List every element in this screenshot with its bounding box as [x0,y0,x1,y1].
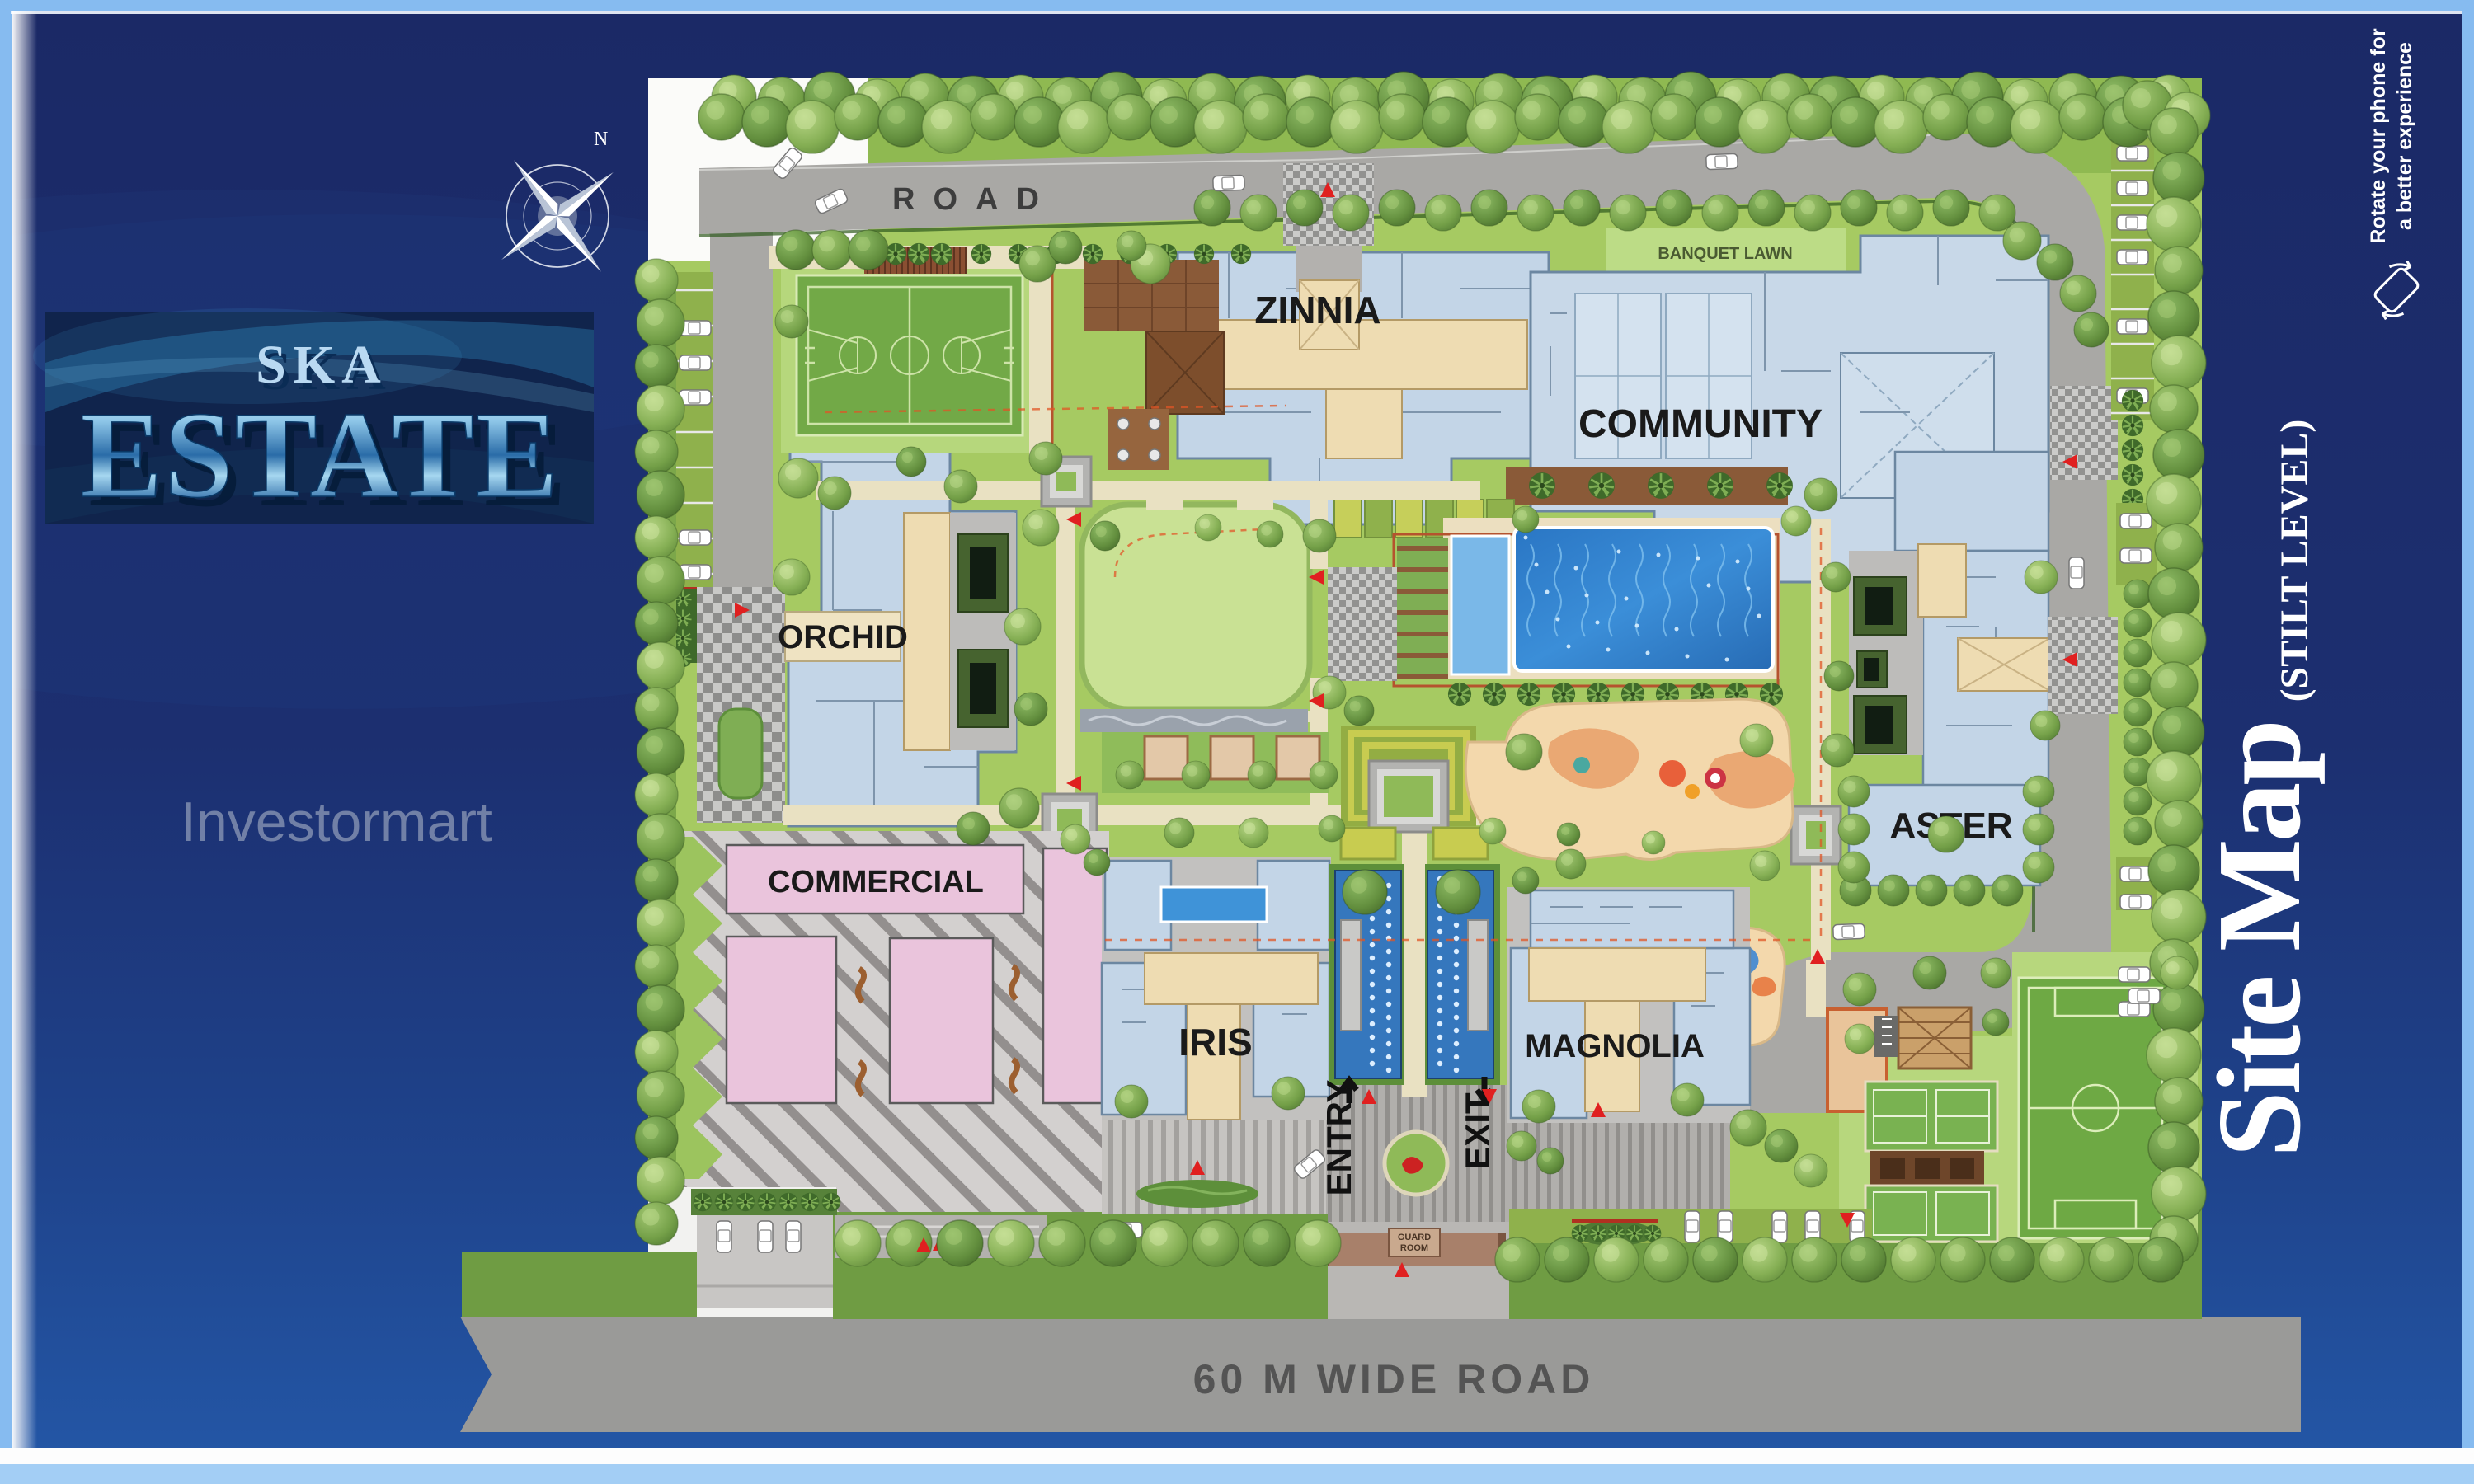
svg-text:ENTRY: ENTRY [1319,1080,1358,1196]
svg-text:EXIT: EXIT [1458,1092,1497,1170]
svg-text:ROOM: ROOM [1400,1243,1428,1253]
svg-text:(STILT LEVEL): (STILT LEVEL) [2273,420,2316,702]
svg-text:ZINNIA: ZINNIA [1254,289,1380,331]
svg-text:Investormart: Investormart [181,791,492,853]
svg-text:ROAD: ROAD [892,182,1057,217]
svg-text:Site Map: Site Map [2194,722,2326,1158]
svg-text:Rotate your phone for: Rotate your phone for [2367,28,2390,243]
svg-text:a better experience: a better experience [2393,42,2416,230]
svg-text:BANQUET LAWN: BANQUET LAWN [1658,245,1792,263]
svg-text:GUARD: GUARD [1398,1233,1431,1242]
svg-text:COMMUNITY: COMMUNITY [1578,402,1823,446]
svg-text:ESTATE: ESTATE [80,387,560,524]
svg-text:60 M WIDE ROAD: 60 M WIDE ROAD [1193,1356,1595,1402]
svg-text:MAGNOLIA: MAGNOLIA [1525,1028,1705,1064]
svg-text:IRIS: IRIS [1178,1021,1252,1064]
svg-text:COMMERCIAL: COMMERCIAL [768,865,984,899]
svg-text:N: N [594,129,608,150]
svg-text:ORCHID: ORCHID [778,619,908,655]
